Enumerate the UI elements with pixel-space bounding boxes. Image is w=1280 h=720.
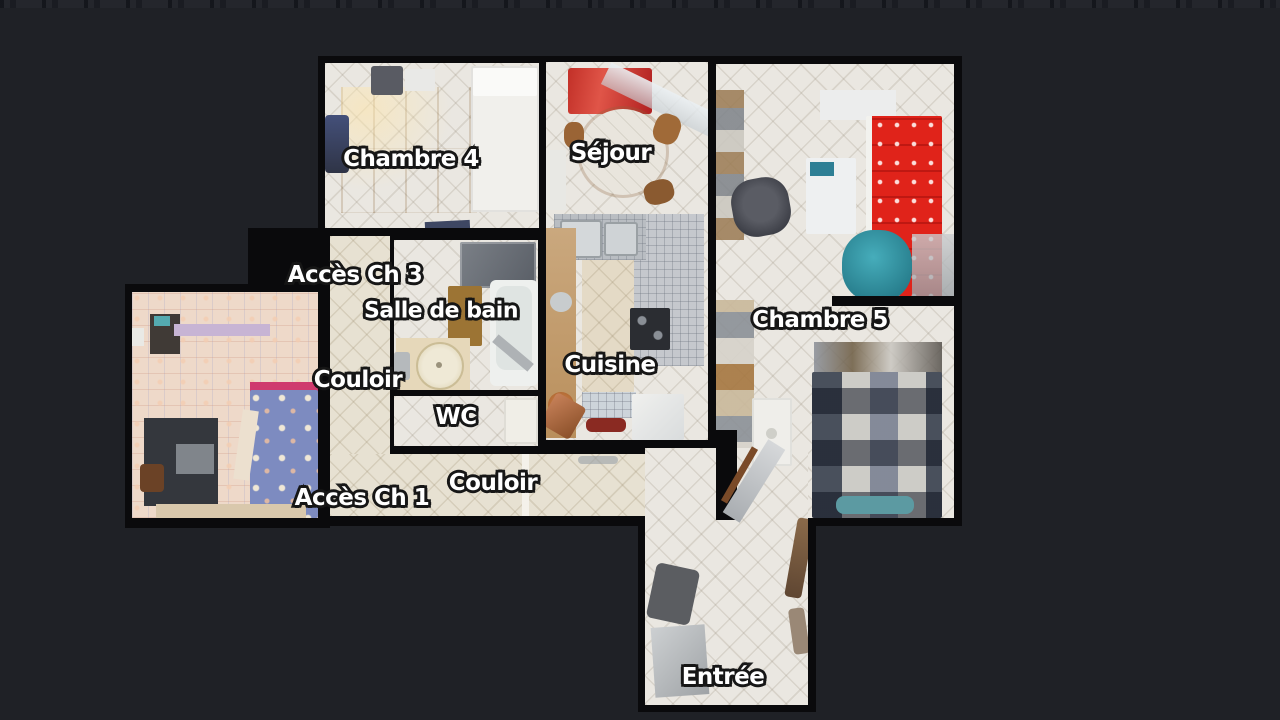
kitchen-floor [582,258,634,414]
floorplan-view: Chambre 4 Séjour Accès Ch 3 Salle de bai… [0,0,1280,720]
bed-pillow [473,68,537,96]
label-salle-de-bain: Salle de bain [364,299,518,324]
box-white [132,328,144,346]
wardrobe-knob [766,428,777,439]
chair-brown [140,464,164,492]
laptop [176,444,214,474]
tray-red [586,418,626,432]
dresser-white [405,69,435,91]
stove [630,308,670,350]
label-cuisine: Cuisine [564,352,655,378]
chair-gray [646,562,701,626]
fridge [546,150,566,210]
label-acces-ch-3: Accès Ch 3 [288,262,423,288]
floor-debris [578,456,618,464]
headboard-clutter [814,342,942,374]
cropped-text-artifact [0,0,1280,8]
box-teal [154,316,170,326]
shelf-lavender [174,324,270,336]
wall-stub-internal [832,296,954,306]
label-chambre-4: Chambre 4 [343,146,479,172]
label-sejour: Séjour [571,140,652,166]
clothes-teal [836,496,914,514]
sink-bowl-right [604,222,638,256]
coat-rack [784,517,808,599]
kitchen-table [632,394,684,440]
label-acces-ch-1: Accès Ch 1 [295,485,430,511]
shoe-pile [788,607,808,655]
beanbag-teal [842,230,912,302]
dresser [371,66,403,95]
rug-dark [425,220,471,228]
label-entree: Entrée [682,664,765,690]
label-wc: WC [435,404,476,430]
floor-strip [156,504,306,518]
shelf-clutter-right [912,234,954,296]
door-panel [504,398,538,444]
book-teal [810,162,834,176]
shelf-clutter-top [716,64,954,90]
sink-drain [436,362,442,368]
room-chambre-1[interactable] [132,292,318,518]
label-couloir-sud: Couloir [449,470,537,496]
pot-silver [550,292,572,312]
counter-bottom [582,392,636,418]
label-chambre-5: Chambre 5 [752,307,888,333]
room-sejour-cuisine[interactable] [546,62,708,440]
label-couloir-ouest: Couloir [314,367,402,393]
